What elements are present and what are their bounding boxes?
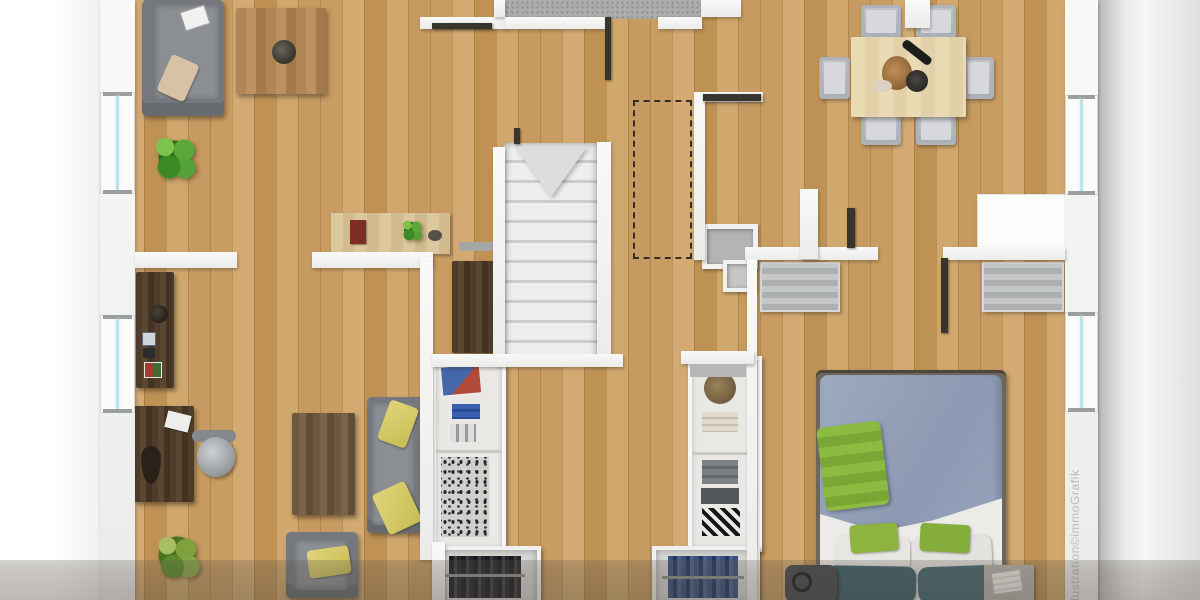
window-sill [1068,191,1095,195]
wall-stub-kitchen [800,189,818,259]
outside-ground-left [0,0,100,600]
wall-hall-right [694,92,705,260]
window-left-2 [100,315,135,413]
wall-living-office-left [135,252,237,268]
window-sill [103,190,132,194]
wall-dressing-top [432,354,623,367]
window-sill [103,409,132,413]
wall-dressing-bedroom [747,259,757,600]
outside-ground-right [1098,0,1200,600]
window-right-1 [1065,95,1098,195]
wall-stairs-right [597,142,611,365]
wall-living-office-right [312,252,433,268]
window-glass [1080,316,1083,408]
wall-dressing-niche [681,351,754,364]
window-glass [116,319,119,409]
niche-mat [690,364,746,377]
door-leaf-living [432,23,492,29]
outer-wall-left [100,0,135,600]
door-leaf-bedroom [941,258,948,333]
wall-stub-hall-top [494,0,505,17]
door-leaf-kitchen [847,208,855,248]
floor-plan: Illustration©immoGrafik [0,0,1200,600]
door-leaf-dining [703,94,761,101]
wall-stub-dining [905,0,930,28]
window-left-1 [100,92,135,194]
wall-stub-top-right [701,0,741,17]
door-leaf-stairs [514,128,520,144]
window-glass [1080,99,1083,191]
wall-bathroom-left [505,17,607,29]
bottom-shadow-band [0,560,1200,600]
wall-bathroom-right [658,17,702,29]
window-glass [116,96,119,190]
wall-bedroom-top-right [943,247,1065,260]
window-right-2 [1065,312,1098,412]
window-sill [1068,408,1095,412]
door-leaf-bathroom [605,17,611,80]
wall-stairs-left [493,147,505,365]
wall-office-dressing [420,257,433,560]
